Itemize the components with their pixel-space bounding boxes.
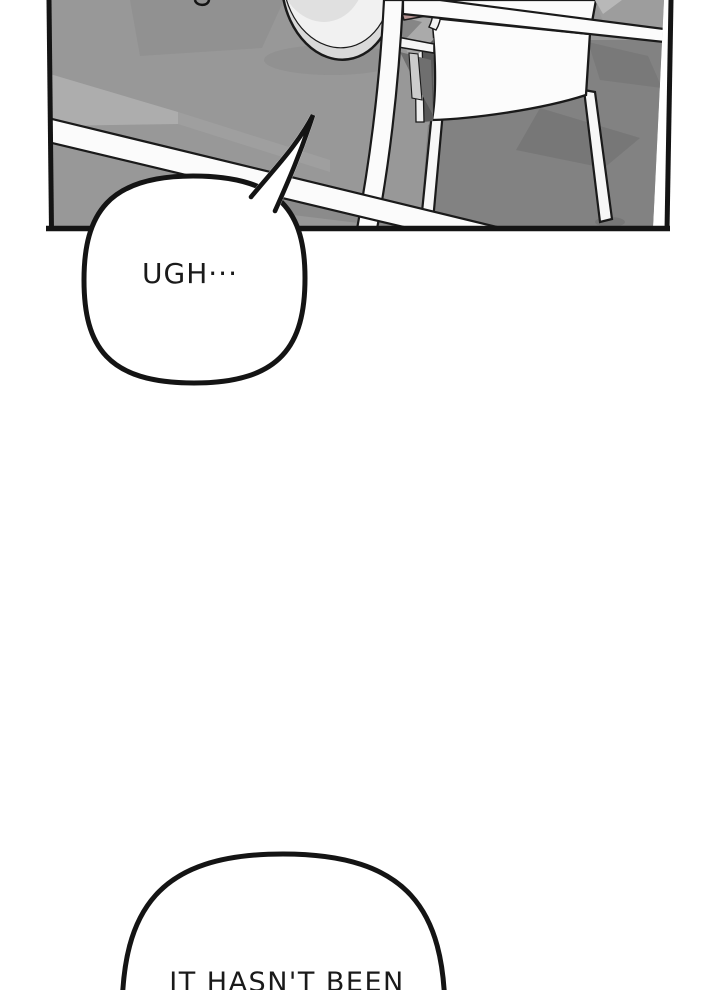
comic-artwork xyxy=(0,0,720,990)
floor-shade-top xyxy=(130,0,284,56)
webtoon-page: UGH··· IT HASN'T BEEN xyxy=(0,0,720,990)
speech-text-hasnt-been: IT HASN'T BEEN xyxy=(117,966,457,990)
speech-text-ugh: UGH··· xyxy=(104,257,276,291)
